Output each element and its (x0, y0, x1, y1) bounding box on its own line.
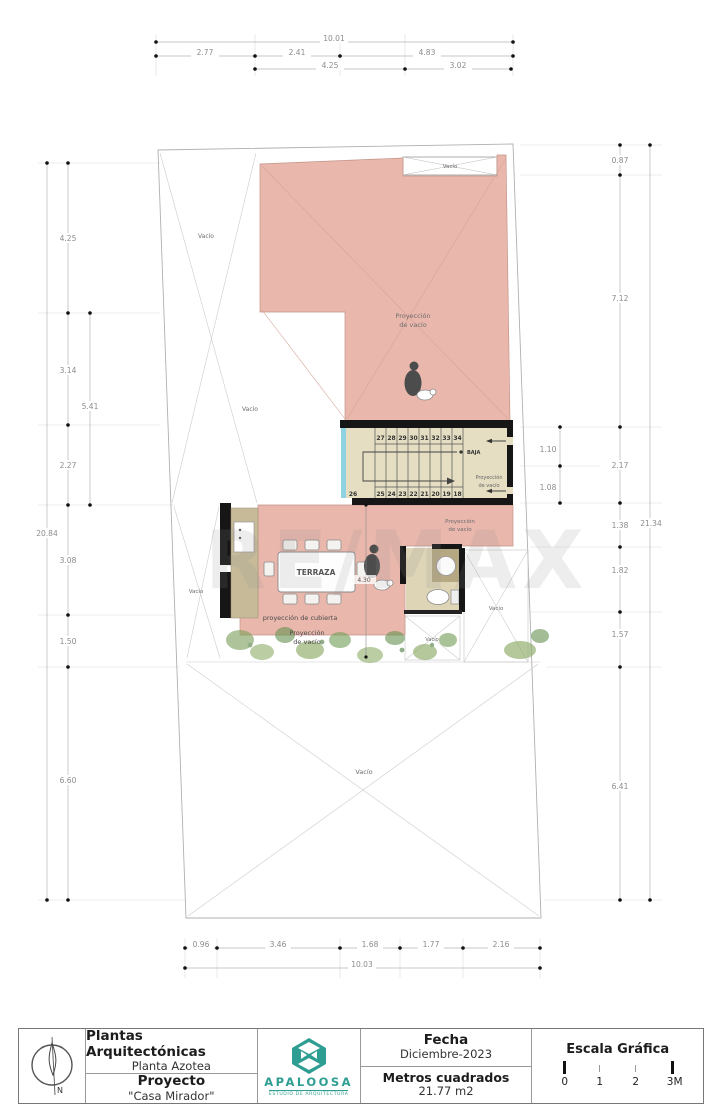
step-number: 29 (398, 435, 406, 442)
dim-label: 4.83 (419, 48, 436, 57)
watermark: RE/MAX (205, 514, 590, 607)
vacio-label: Vacío (425, 636, 438, 643)
scale-tick-2: 2 (632, 1076, 639, 1088)
step-number: 34 (453, 435, 461, 442)
project-name: "Casa Mirador" (128, 1090, 214, 1103)
dim-label: 1.68 (362, 940, 379, 949)
dim-label: 2.27 (60, 461, 77, 470)
roof-void-label-2: de vacío (399, 321, 426, 329)
area-label: Metros cuadrados (383, 1071, 510, 1085)
step-number: 20 (431, 491, 439, 498)
step-number: 19 (442, 491, 450, 498)
dim-label: 3.46 (270, 940, 287, 949)
floor-plan-drawing: 27 28 29 30 31 32 33 34 25 24 23 22 21 2… (0, 0, 720, 1020)
baja-label: BAJA (467, 450, 481, 456)
strip-void-label-1: Proyección (445, 518, 475, 525)
dim-label: 5.41 (82, 402, 99, 411)
title-block: N Plantas Arquitectónicas Planta Azotea … (18, 1028, 704, 1104)
roof-slab-upper (260, 155, 510, 421)
step-number: 22 (409, 491, 417, 498)
dim-label: 10.01 (323, 34, 345, 43)
vacio-label: Vacío (355, 768, 372, 776)
dim-label: 2.16 (493, 940, 510, 949)
dim-label: 1.08 (540, 483, 557, 492)
terrace-void-label-2: de vacío (293, 638, 320, 646)
scale-tick-3: 3M (667, 1076, 683, 1088)
step-number: 24 (387, 491, 395, 498)
vacio-label: Vacío (443, 163, 458, 170)
dim-label: 2.17 (612, 461, 629, 470)
dim-label: 1.10 (540, 445, 557, 454)
area-value: 21.77 m2 (418, 1085, 473, 1098)
step-number: 25 (376, 491, 384, 498)
step-number-landing: 26 (349, 491, 357, 498)
dim-label: 6.41 (612, 782, 629, 791)
dim-label: 7.12 (612, 294, 629, 303)
dimension-labels-right: 0.87 7.12 1.10 2.17 1.08 1.38 1.82 1.57 … (540, 155, 668, 791)
north-arrow-icon: N (21, 1031, 83, 1101)
dimension-labels-top: 10.01 2.77 2.41 4.83 4.25 3.02 (191, 34, 472, 70)
north-label: N (57, 1086, 63, 1095)
dim-label: 1.38 (612, 521, 629, 530)
dim-label: 1.57 (612, 630, 629, 639)
dim-label: 1.50 (60, 637, 77, 646)
dim-label: 3.14 (60, 366, 77, 375)
date-label: Fecha (424, 1033, 469, 1049)
dim-label: 10.03 (351, 960, 373, 969)
vacio-label: Vacío (189, 588, 204, 595)
step-number: 31 (420, 435, 428, 442)
staircase: 27 28 29 30 31 32 33 34 25 24 23 22 21 2… (340, 420, 513, 505)
step-number: 18 (453, 491, 461, 498)
vacio-label: Vacío (242, 406, 258, 413)
project-label: Proyecto (138, 1074, 206, 1090)
logo-name: APALOOSA (264, 1075, 353, 1089)
dim-label: 3.08 (60, 556, 77, 565)
logo-subtitle: ESTUDIO DE ARQUITECTURA (269, 1090, 349, 1097)
step-number: 32 (431, 435, 439, 442)
dim-label: 3.02 (450, 61, 467, 70)
sheet-subtitle: Planta Azotea (132, 1060, 211, 1073)
scale-tick-0: 0 (561, 1076, 568, 1088)
scale-title: Escala Gráfica (566, 1042, 669, 1057)
step-number: 33 (442, 435, 450, 442)
step-number: 23 (398, 491, 406, 498)
dim-label: 6.60 (60, 776, 77, 785)
date-value: Diciembre-2023 (400, 1048, 492, 1061)
north-arrow-cell: N (19, 1029, 86, 1103)
stair-void-label-2: de vacío (478, 482, 499, 489)
roof-void-label-1: Proyección (395, 312, 430, 320)
sheet-title: Plantas Arquitectónicas (86, 1029, 257, 1060)
step-number: 21 (420, 491, 428, 498)
date-area-cell: Fecha Diciembre-2023 Metros cuadrados 21… (361, 1029, 533, 1103)
dim-label: 21.34 (640, 519, 662, 528)
dimension-labels-bottom: 0.96 3.46 1.68 1.77 2.16 10.03 (188, 940, 514, 969)
scale-tick-1: 1 (596, 1076, 603, 1088)
vacio-label: Vacío (489, 605, 504, 612)
scale-bar: 0 1 2 3M (533, 1059, 703, 1091)
dim-label: 1.77 (423, 940, 440, 949)
sheet-title-cell: Plantas Arquitectónicas Planta Azotea Pr… (86, 1029, 258, 1103)
terrace-void-label-1: Proyección (289, 629, 324, 637)
dim-label: 2.77 (197, 48, 214, 57)
stair-void-label-1: Proyección (475, 474, 502, 481)
dim-label: 4.30 (357, 577, 371, 584)
dim-label: 1.82 (612, 566, 629, 575)
dim-label: 4.25 (60, 234, 77, 243)
vacio-label: Vacío (198, 233, 214, 240)
step-number: 28 (387, 435, 395, 442)
step-number: 27 (376, 435, 384, 442)
logo-cell: APALOOSA ESTUDIO DE ARQUITECTURA (258, 1029, 361, 1103)
dim-label: 0.87 (612, 156, 629, 165)
dim-label: 20.84 (36, 529, 58, 538)
cubierta-label: proyección de cubierta (263, 614, 338, 622)
dim-label: 2.41 (289, 48, 306, 57)
strip-void-label-2: de vacío (448, 526, 472, 533)
graphic-scale-cell: Escala Gráfica 0 1 2 3M (532, 1029, 703, 1103)
step-number: 30 (409, 435, 417, 442)
dim-label: 0.96 (193, 940, 210, 949)
dim-label: 4.25 (322, 61, 339, 70)
apaloosa-logo-icon (292, 1038, 326, 1074)
dimension-labels-left: 4.25 3.14 5.41 2.27 3.08 1.50 6.60 20.84 (30, 233, 102, 785)
